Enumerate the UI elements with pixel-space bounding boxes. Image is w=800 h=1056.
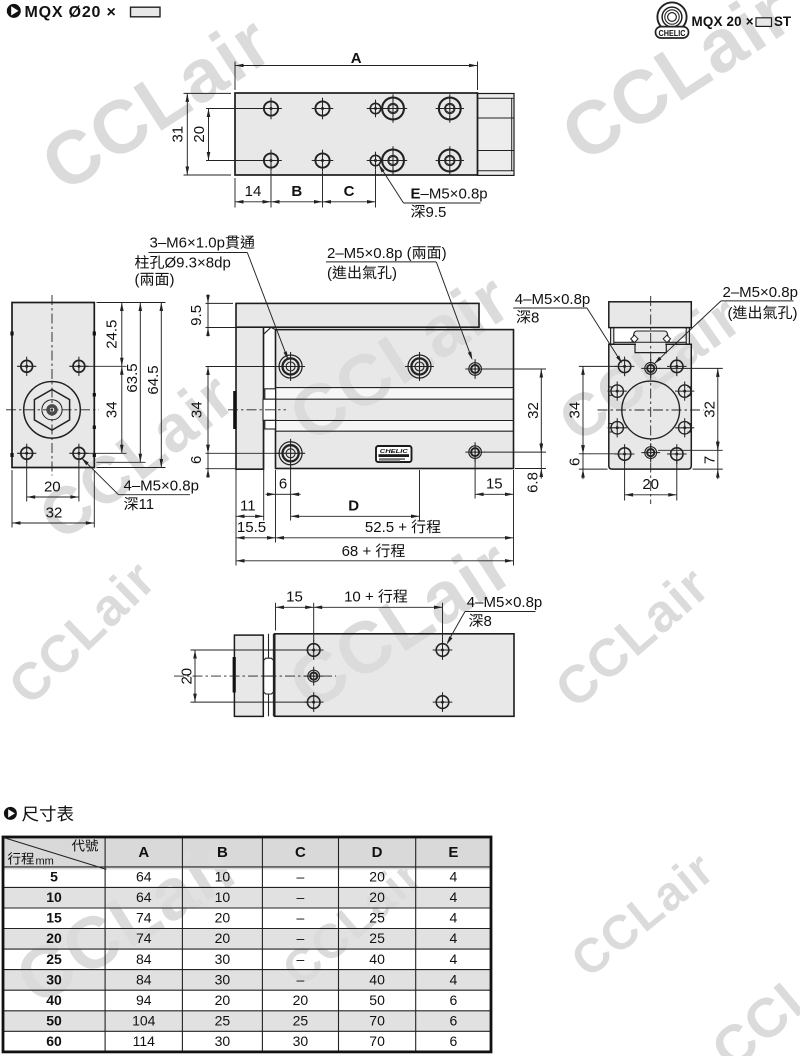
svg-text:6: 6 (450, 1013, 458, 1029)
svg-text:20: 20 (215, 910, 231, 926)
svg-text:–: – (297, 889, 305, 905)
svg-text:30: 30 (46, 971, 62, 987)
svg-text:6: 6 (188, 456, 205, 464)
svg-text:–: – (297, 869, 305, 885)
svg-text:4–M5×0.8p: 4–M5×0.8p (467, 594, 542, 611)
svg-text:8: 8 (531, 309, 539, 326)
svg-text:15.5: 15.5 (237, 519, 266, 536)
svg-text:50: 50 (46, 1013, 62, 1029)
svg-text:20: 20 (215, 930, 231, 946)
svg-text:E: E (411, 186, 421, 203)
svg-text:40: 40 (369, 971, 385, 987)
svg-text:30: 30 (215, 1033, 231, 1049)
svg-text:2–M5×0.8p (: 2–M5×0.8p ( (327, 245, 412, 262)
svg-text:4: 4 (450, 910, 458, 926)
svg-text:20: 20 (642, 476, 659, 493)
svg-text:10: 10 (215, 889, 231, 905)
svg-text:84: 84 (136, 951, 152, 967)
svg-text:4: 4 (450, 869, 458, 885)
svg-text:9.5: 9.5 (426, 204, 447, 221)
svg-text:8: 8 (484, 613, 492, 630)
svg-text:32: 32 (46, 504, 63, 521)
svg-text:14: 14 (245, 183, 262, 200)
svg-text:–M5×0.8p: –M5×0.8p (421, 186, 488, 203)
svg-text:114: 114 (133, 1033, 156, 1049)
svg-text:–: – (297, 930, 305, 946)
svg-text:3–M6×1.0p: 3–M6×1.0p (150, 235, 225, 252)
svg-text:34: 34 (567, 402, 584, 419)
svg-text:): ) (392, 265, 397, 282)
svg-text:20: 20 (44, 478, 61, 495)
svg-text:–: – (297, 951, 305, 967)
svg-text:34: 34 (189, 401, 206, 418)
svg-text:11: 11 (240, 498, 256, 515)
svg-text:20: 20 (191, 126, 208, 143)
svg-text:4: 4 (450, 971, 458, 987)
svg-text:30: 30 (215, 971, 231, 987)
svg-text:B: B (291, 183, 302, 200)
svg-text:C: C (295, 844, 306, 861)
svg-text:74: 74 (136, 910, 152, 926)
svg-text:68 +: 68 + (342, 543, 372, 560)
svg-text:70: 70 (369, 1033, 385, 1049)
svg-text:11: 11 (139, 496, 155, 513)
svg-text:D: D (348, 498, 359, 515)
svg-text:E: E (448, 844, 458, 861)
svg-text:4: 4 (450, 930, 458, 946)
svg-text:MQX Ø20 ×: MQX Ø20 × (25, 4, 117, 21)
svg-text:5: 5 (50, 869, 58, 885)
svg-text:10 +: 10 + (344, 589, 374, 606)
svg-text:4–M5×0.8p: 4–M5×0.8p (124, 477, 199, 494)
svg-text:–: – (297, 971, 305, 987)
svg-text:20: 20 (369, 889, 385, 905)
svg-text:31: 31 (170, 126, 187, 143)
svg-text:20: 20 (179, 668, 196, 685)
svg-text:25: 25 (369, 930, 385, 946)
svg-text:CHELIC: CHELIC (659, 29, 686, 38)
svg-text:4: 4 (450, 889, 458, 905)
svg-text:6: 6 (279, 476, 287, 493)
svg-text:20: 20 (46, 930, 62, 946)
svg-text:MQX 20 ×: MQX 20 × (692, 14, 754, 29)
svg-text:ST: ST (774, 14, 792, 29)
svg-text:94: 94 (136, 992, 152, 1008)
svg-text:6: 6 (567, 458, 584, 466)
svg-text:2–M5×0.8p: 2–M5×0.8p (723, 284, 798, 301)
svg-text:34: 34 (104, 401, 121, 418)
svg-text:30: 30 (293, 1033, 309, 1049)
svg-text:64: 64 (136, 869, 152, 885)
svg-text:6: 6 (450, 992, 458, 1008)
svg-text:50: 50 (369, 992, 385, 1008)
svg-text:4: 4 (450, 951, 458, 967)
svg-text:(: ( (728, 305, 733, 322)
svg-text:25: 25 (46, 951, 62, 967)
svg-text:A: A (351, 50, 362, 67)
svg-text:70: 70 (369, 1013, 385, 1029)
svg-text:A: A (138, 844, 149, 861)
svg-text:15: 15 (46, 910, 62, 926)
svg-text:): ) (442, 245, 447, 262)
svg-text:): ) (793, 305, 798, 322)
svg-text:20: 20 (369, 869, 385, 885)
svg-text:52.5 +: 52.5 + (365, 519, 407, 536)
svg-text:74: 74 (136, 930, 152, 946)
svg-text:30: 30 (215, 951, 231, 967)
svg-text:25: 25 (215, 1013, 231, 1029)
svg-text:32: 32 (701, 401, 718, 418)
svg-text:4–M5×0.8p: 4–M5×0.8p (515, 291, 590, 308)
svg-text:32: 32 (525, 402, 542, 419)
svg-text:64: 64 (136, 889, 152, 905)
svg-text:(: ( (327, 265, 332, 282)
svg-text:25: 25 (293, 1013, 309, 1029)
svg-text:7: 7 (701, 456, 718, 464)
svg-text:mm: mm (36, 856, 54, 868)
svg-text:): ) (170, 272, 175, 289)
svg-text:B: B (217, 844, 228, 861)
svg-text:10: 10 (215, 869, 231, 885)
svg-text:60: 60 (46, 1033, 62, 1049)
svg-text:20: 20 (215, 992, 231, 1008)
svg-text:10: 10 (46, 889, 62, 905)
svg-text:9.5: 9.5 (188, 305, 205, 326)
svg-text:63.5: 63.5 (124, 363, 141, 392)
svg-text:24.5: 24.5 (104, 320, 121, 349)
svg-text:Ø9.3×8dp: Ø9.3×8dp (165, 255, 231, 272)
svg-text:6: 6 (450, 1033, 458, 1049)
svg-text:40: 40 (369, 951, 385, 967)
svg-text:20: 20 (293, 992, 309, 1008)
svg-text:40: 40 (46, 992, 62, 1008)
svg-text:CHELIC: CHELIC (380, 449, 409, 455)
svg-text:84: 84 (136, 971, 152, 987)
svg-text:(: ( (135, 272, 140, 289)
svg-text:C: C (344, 183, 355, 200)
svg-text:64.5: 64.5 (145, 365, 162, 394)
svg-text:D: D (372, 844, 383, 861)
svg-text:15: 15 (486, 476, 503, 493)
svg-text:15: 15 (286, 589, 303, 606)
svg-text:104: 104 (132, 1013, 156, 1029)
svg-text:6.8: 6.8 (525, 472, 542, 493)
svg-text:–: – (297, 910, 305, 926)
svg-text:25: 25 (369, 910, 385, 926)
